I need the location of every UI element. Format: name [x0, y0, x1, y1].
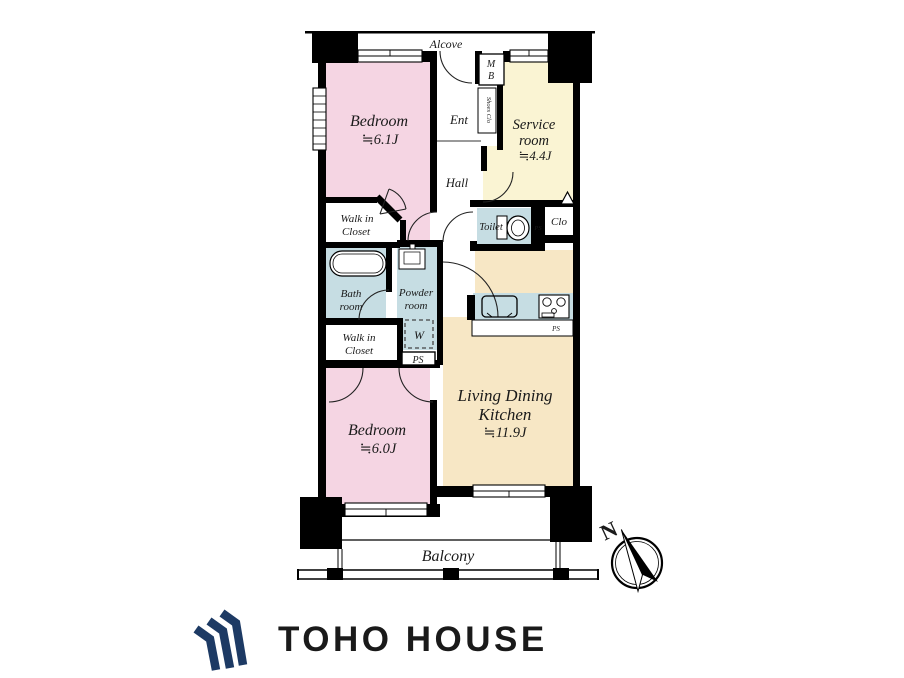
ldk-label-line2: Kitchen — [478, 405, 532, 424]
washer-label: W — [414, 328, 425, 342]
bath-label-line2: room — [340, 301, 363, 313]
wic1-label-line2: Closet — [342, 226, 371, 238]
toilet-label: Toilet — [479, 222, 504, 233]
stove — [539, 295, 569, 318]
logo: TOHO HOUSE — [196, 613, 548, 670]
bathtub — [330, 251, 386, 276]
window-bedroom1-top — [358, 50, 422, 62]
powder-label-line1: Powder — [398, 287, 434, 299]
bedroom2-size-label: ≒6.0J — [360, 441, 397, 457]
wic2-label-line1: Walk in — [343, 332, 376, 344]
compass-north-label: N — [596, 516, 621, 545]
ldk-size-label: ≒11.9J — [484, 425, 527, 441]
bath-label-line1: Bath — [341, 288, 362, 300]
clo-label: Clo — [551, 216, 567, 228]
window-bedroom1-left — [313, 88, 326, 150]
ent-label: Ent — [449, 112, 468, 127]
toilet-door-arc — [443, 212, 473, 242]
wall-corner-bottom-left — [300, 497, 342, 549]
ldk-room — [443, 250, 573, 486]
bedroom1-label: Bedroom — [350, 113, 408, 130]
service-label-line2: room — [519, 133, 549, 149]
wall-right — [573, 83, 580, 486]
bedroom2-label: Bedroom — [348, 422, 406, 439]
window-service-top — [510, 50, 548, 62]
service-label-line1: Service — [513, 117, 556, 133]
window-ldk-bottom — [473, 485, 545, 497]
wic2-label-line2: Closet — [345, 345, 374, 357]
hall-label: Hall — [445, 176, 469, 190]
shoes-clo-label: Shoes Clo — [485, 97, 492, 124]
logo-mark — [196, 613, 243, 670]
compass: N — [596, 516, 662, 591]
bedroom1-size-label: ≒6.1J — [362, 132, 399, 148]
service-size-label: ≒4.4J — [519, 148, 553, 163]
powder-label-line2: room — [405, 300, 428, 312]
ps-label-main: PS — [411, 355, 423, 366]
wall-corner-top-right — [548, 31, 592, 83]
wic1-label-line1: Walk in — [341, 213, 374, 225]
ps-label-kitchen: PS — [551, 325, 560, 333]
mb-label-line2: B — [488, 71, 494, 82]
window-bedroom2-bottom — [345, 503, 427, 516]
floorplan-page: N Alcove M B Ent Shoes Clo Service room … — [0, 0, 904, 678]
ldk-label-line1: Living Dining — [457, 386, 553, 405]
mb-label-line1: M — [486, 59, 496, 70]
ps-label-toilet: PS — [533, 225, 542, 232]
floorplan-drawing: N Alcove M B Ent Shoes Clo Service room … — [0, 0, 904, 678]
entrance-door-arc — [440, 51, 472, 83]
wall-corner-bottom-right — [550, 486, 592, 542]
balcony-label: Balcony — [422, 548, 475, 565]
alcove-label: Alcove — [429, 37, 463, 51]
balcony-railing — [298, 568, 598, 580]
logo-text: TOHO HOUSE — [278, 620, 548, 659]
